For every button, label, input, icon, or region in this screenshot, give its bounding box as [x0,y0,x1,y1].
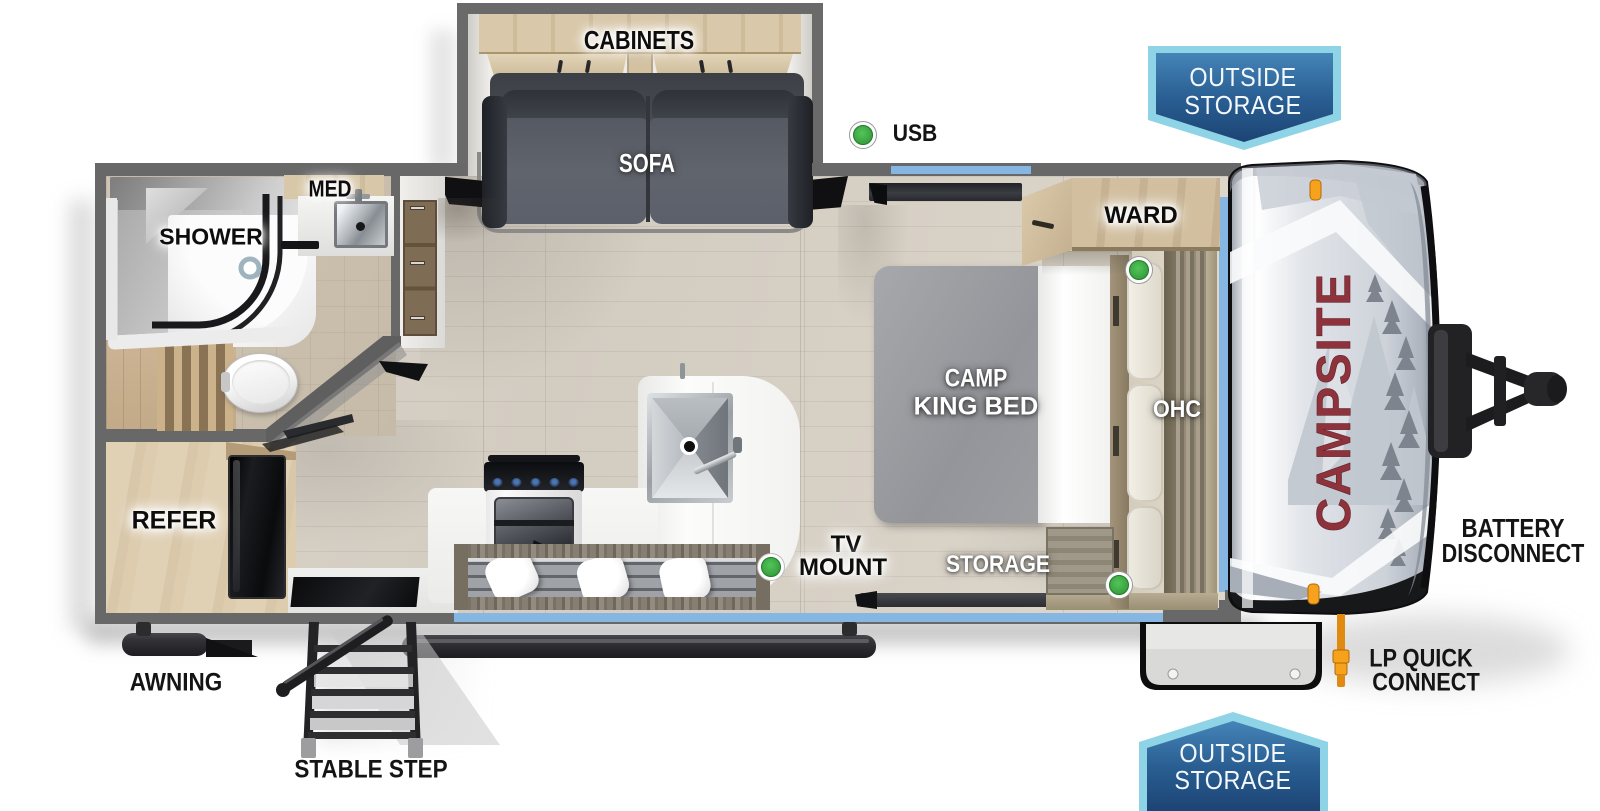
svg-text:CAMPSITE: CAMPSITE [1308,272,1361,532]
